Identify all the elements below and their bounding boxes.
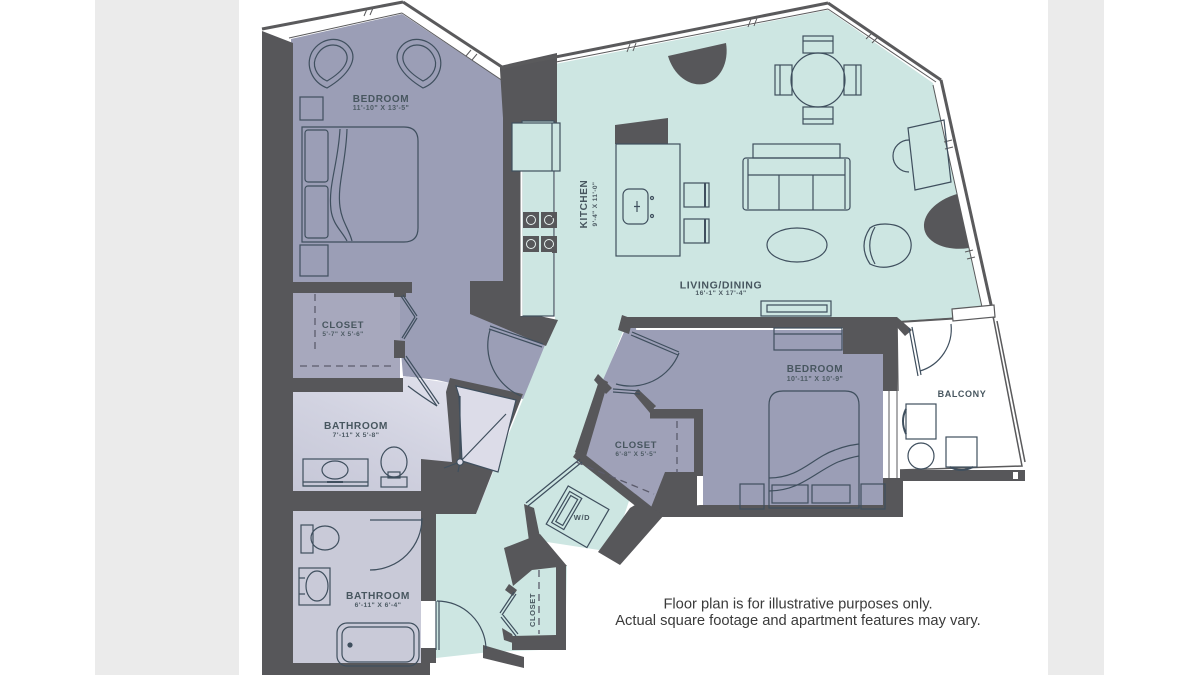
svg-text:6'-8" X 5'-5": 6'-8" X 5'-5"	[615, 451, 656, 458]
svg-text:9'-4" X 11'-0": 9'-4" X 11'-0"	[592, 182, 599, 227]
svg-text:CLOSET: CLOSET	[615, 440, 657, 451]
svg-text:11'-10" X 13'-5": 11'-10" X 13'-5"	[353, 105, 409, 112]
svg-text:KITCHEN: KITCHEN	[579, 180, 590, 229]
svg-text:BEDROOM: BEDROOM	[787, 364, 843, 375]
svg-text:5'-7" X 5'-6": 5'-7" X 5'-6"	[322, 331, 363, 338]
svg-text:BEDROOM: BEDROOM	[353, 94, 409, 105]
svg-text:BALCONY: BALCONY	[938, 389, 987, 399]
svg-text:6'-11" X 6'-4": 6'-11" X 6'-4"	[355, 602, 402, 609]
svg-text:CLOSET: CLOSET	[528, 593, 537, 627]
svg-text:Actual square footage and apar: Actual square footage and apartment feat…	[615, 613, 981, 629]
svg-text:7'-11" X 5'-8": 7'-11" X 5'-8"	[333, 432, 380, 439]
svg-text:Floor plan is for illustrative: Floor plan is for illustrative purposes …	[663, 596, 932, 612]
svg-text:16'-1" X 17'-4": 16'-1" X 17'-4"	[695, 290, 746, 297]
svg-text:BATHROOM: BATHROOM	[346, 591, 410, 602]
svg-text:BATHROOM: BATHROOM	[324, 421, 388, 432]
svg-text:CLOSET: CLOSET	[322, 320, 364, 331]
svg-text:W/D: W/D	[574, 513, 590, 522]
svg-text:10'-11" X 10'-9": 10'-11" X 10'-9"	[787, 376, 843, 383]
